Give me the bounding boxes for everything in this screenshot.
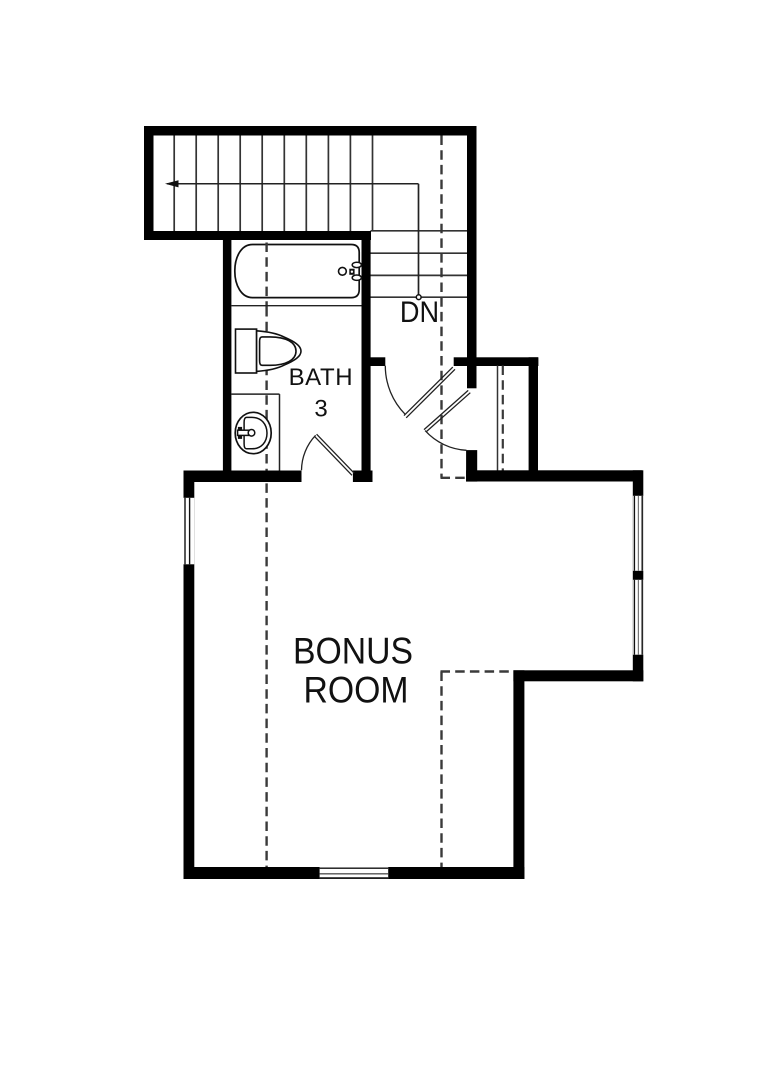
svg-text:ROOM: ROOM — [304, 669, 409, 711]
svg-text:BATH: BATH — [289, 364, 354, 391]
svg-text:3: 3 — [314, 395, 327, 422]
svg-text:BONUS: BONUS — [293, 630, 413, 672]
svg-text:DN: DN — [400, 296, 439, 329]
